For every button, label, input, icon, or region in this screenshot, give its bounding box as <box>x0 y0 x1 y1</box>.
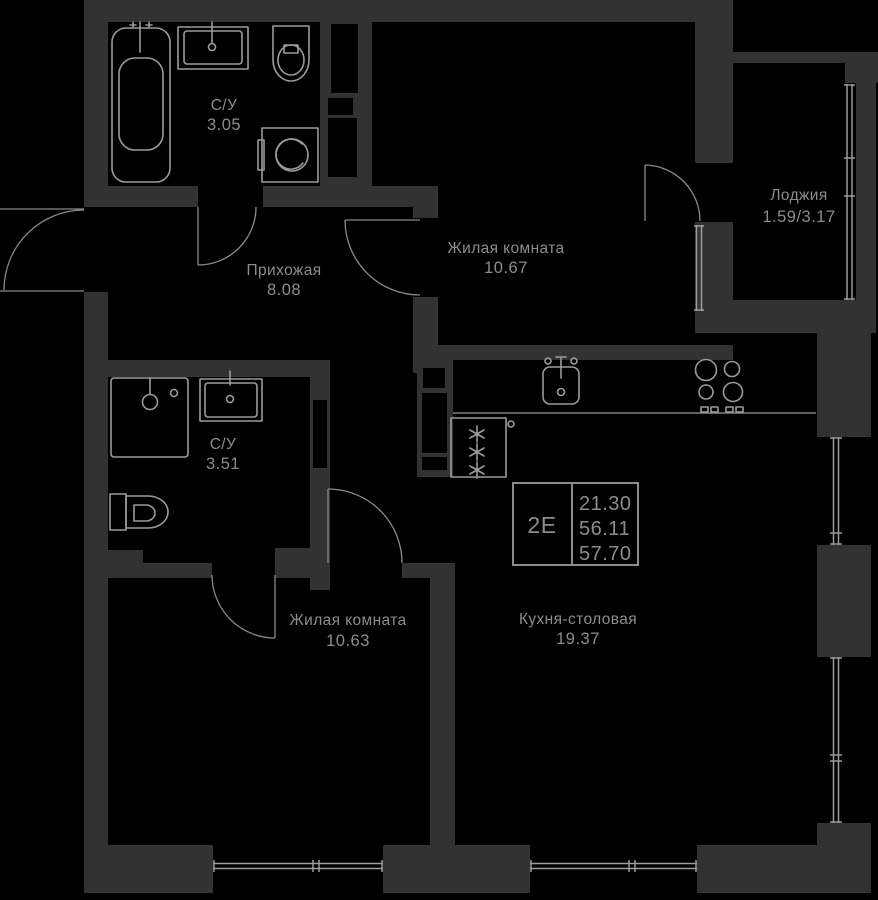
stamp-flat-type: 2Е <box>527 512 556 538</box>
room-living2-area: 10.63 <box>326 632 370 650</box>
room-hallway-label: Прихожая <box>246 262 321 279</box>
room-hallway-area: 8.08 <box>267 281 301 299</box>
room-bath2: С/У 3.51 <box>206 436 240 473</box>
room-bath2-label: С/У <box>210 436 237 453</box>
room-bath1: С/У 3.05 <box>207 97 241 134</box>
room-kitchen-label: Кухня-столовая <box>519 611 637 628</box>
room-living2-label: Жилая комната <box>289 612 406 629</box>
room-loggia-area: 1.59/3.17 <box>762 208 835 226</box>
room-bath1-area: 3.05 <box>207 116 241 134</box>
stamp-area: 56.11 <box>579 518 630 540</box>
room-living1-label: Жилая комната <box>447 240 564 257</box>
room-bath2-area: 3.51 <box>206 455 240 473</box>
stamp-total-area: 57.70 <box>579 543 632 565</box>
floor-plan-canvas: С/У 3.05 Прихожая 8.08 Жилая комната 10.… <box>0 0 878 900</box>
stamp-living-area: 21.30 <box>579 493 632 515</box>
room-kitchen-area: 19.37 <box>556 630 600 648</box>
floor-plan: С/У 3.05 Прихожая 8.08 Жилая комната 10.… <box>0 0 878 900</box>
room-loggia-label: Лоджия <box>770 187 827 204</box>
room-living1-area: 10.67 <box>484 259 528 277</box>
room-bath1-label: С/У <box>211 97 238 114</box>
